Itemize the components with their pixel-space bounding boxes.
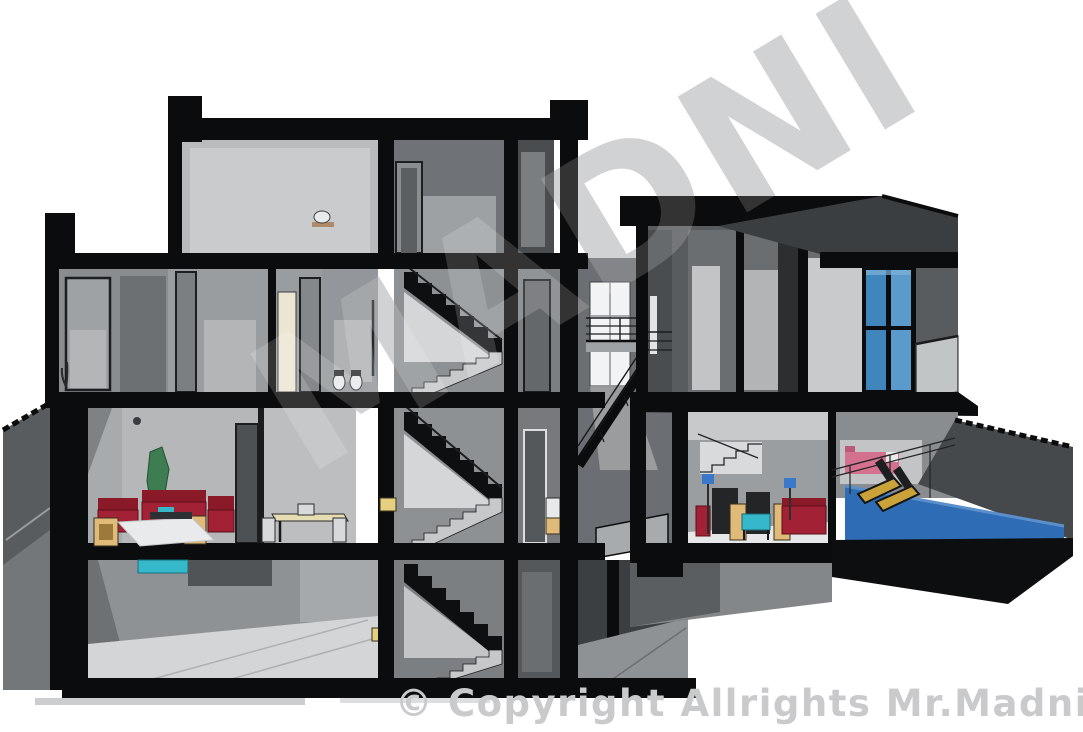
chair xyxy=(333,518,346,542)
roof-slab xyxy=(168,118,588,140)
armchair xyxy=(208,510,234,532)
floor-lamp xyxy=(702,474,714,484)
red-sofa xyxy=(782,506,826,534)
door xyxy=(236,424,258,543)
building-section-canvas: MADNI xyxy=(0,0,1083,732)
parapet xyxy=(168,96,202,142)
glass-coffee-table xyxy=(742,514,770,530)
pot xyxy=(314,211,330,223)
copyright-watermark: © Copyright Allrights Mr.Madni xyxy=(395,682,1083,725)
chair xyxy=(262,518,275,542)
architectural-section-render: MADNI xyxy=(0,0,1083,732)
coffee-table xyxy=(150,512,192,519)
door xyxy=(176,272,196,392)
glass-partition-frame xyxy=(828,412,836,543)
pedestal xyxy=(546,498,560,518)
blue-window xyxy=(862,264,916,392)
cyan-duct xyxy=(138,560,188,573)
yellow-wall-lamp xyxy=(380,498,396,511)
chair xyxy=(298,504,314,515)
site-wall-left xyxy=(3,403,50,690)
door xyxy=(524,430,546,543)
glass-balustrade xyxy=(916,336,958,398)
parapet xyxy=(45,213,75,257)
beam-block xyxy=(637,545,683,577)
floor-lamp xyxy=(784,478,796,488)
ceiling-fixture xyxy=(133,417,141,425)
door-panel xyxy=(744,270,778,390)
